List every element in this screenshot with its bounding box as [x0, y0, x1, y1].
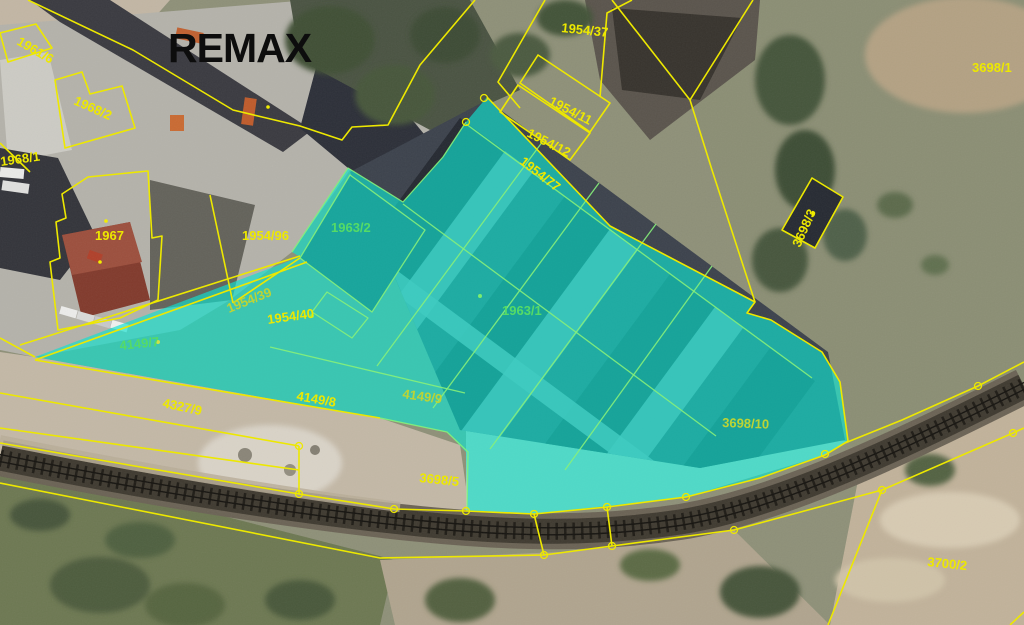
survey-dot: [98, 260, 102, 264]
map-screenshot: 1961/6 1968/2 1968/1 1967 1954/96 1954/3…: [0, 0, 1024, 625]
survey-dot: [104, 219, 108, 223]
parcel-label-1954-96: 1954/96: [242, 228, 289, 243]
parcel-label-1967: 1967: [95, 228, 124, 243]
survey-dot: [478, 294, 482, 298]
parcel-label-3698-10: 3698/10: [722, 415, 769, 432]
parcel-label-1963-1: 1963/1: [502, 303, 542, 318]
survey-dot: [266, 105, 270, 109]
parcel-label-3698-1: 3698/1: [972, 60, 1012, 75]
remax-logo: REMAX: [168, 25, 312, 71]
map-canvas: 1961/6 1968/2 1968/1 1967 1954/96 1954/3…: [0, 0, 1024, 625]
parcel-label-1963-2: 1963/2: [331, 220, 371, 235]
